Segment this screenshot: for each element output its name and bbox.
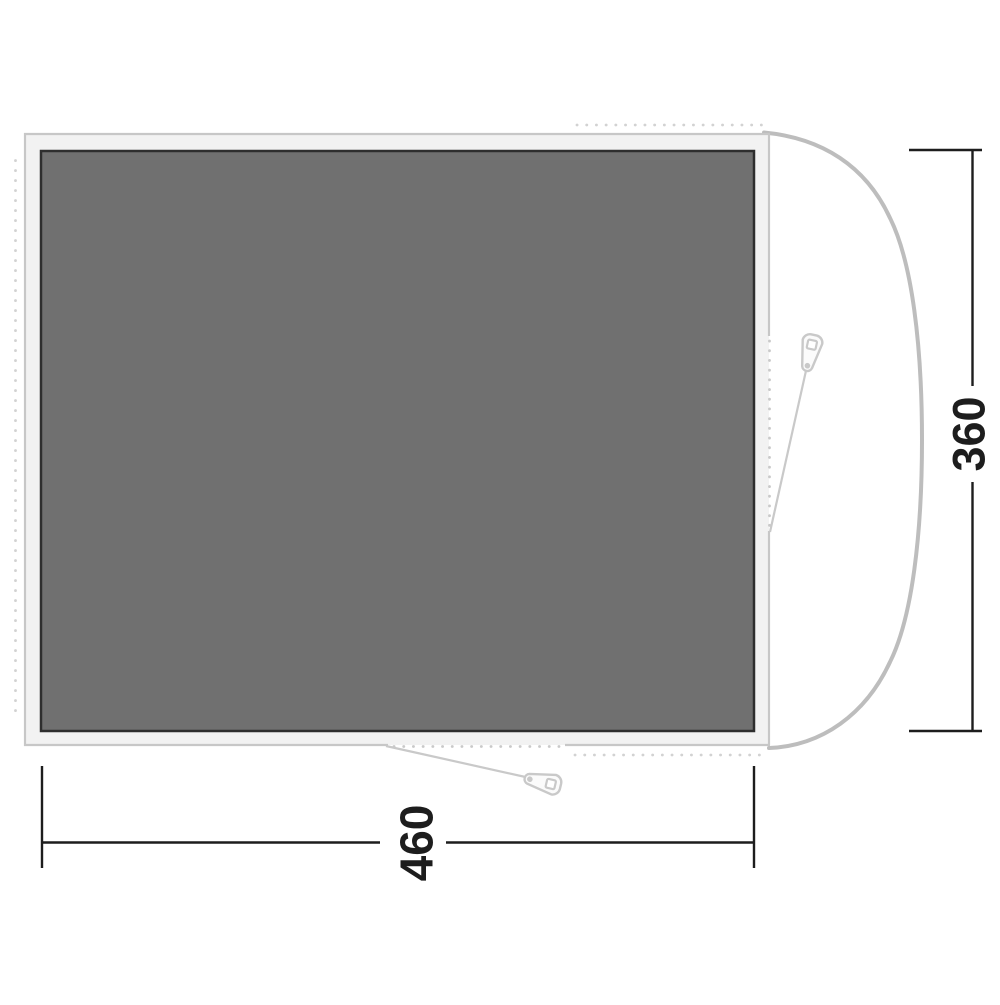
svg-text:460: 460 bbox=[391, 805, 443, 882]
svg-text:360: 360 bbox=[944, 396, 995, 471]
